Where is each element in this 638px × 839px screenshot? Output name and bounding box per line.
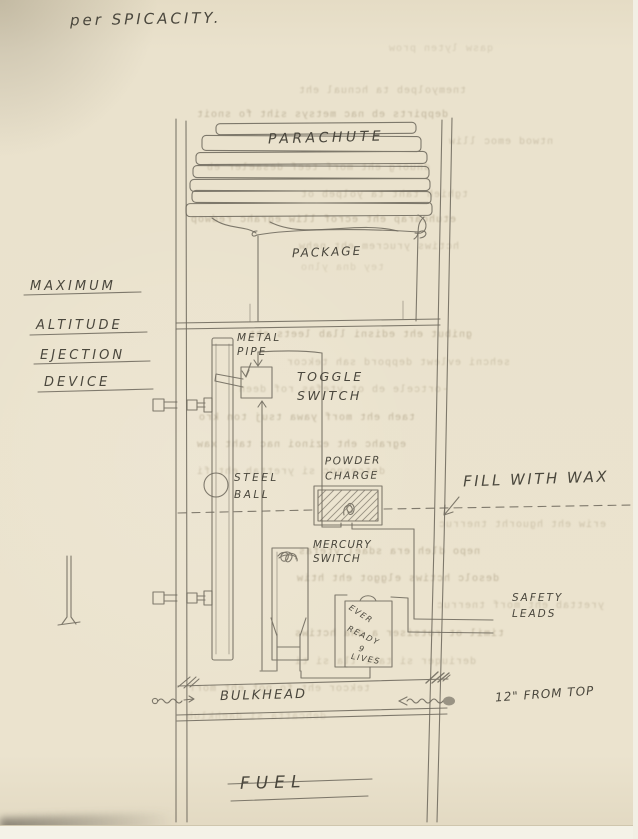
- package-box: [252, 230, 426, 321]
- mount-bolt-lower: [153, 591, 212, 605]
- label-metal-pipe: METAL PIPE: [237, 331, 281, 359]
- rocket-body-tube: [175, 118, 452, 822]
- side-label-ejection: EJECTION: [40, 348, 125, 363]
- mercury-switch: [271, 548, 308, 671]
- side-label-device: DEVICE: [44, 375, 110, 390]
- left-screw-head: [152, 698, 157, 703]
- label-safety-leads: SAFETY LEADS: [512, 590, 563, 622]
- right-screw-head: [443, 697, 455, 706]
- label-steel-line1: STEEL: [234, 470, 279, 487]
- wax-fill-dashed-line: [178, 505, 632, 513]
- label-mercury-line1: MERCURY: [313, 538, 372, 552]
- label-metal-pipe-line2: PIPE: [237, 345, 281, 359]
- label-fuel: FUEL: [240, 772, 307, 794]
- scan-right-edge: [633, 0, 638, 839]
- label-toggle-line2: SWITCH: [297, 386, 364, 405]
- scanned-diagram-page: qasw lyten prow tnemyolpeb ta hcnual eht…: [0, 0, 638, 839]
- scan-bottom-edge: [0, 825, 638, 839]
- side-label-maximum: MAXIMUM: [30, 279, 116, 294]
- circuit-wires: [254, 351, 493, 678]
- label-package: PACKAGE: [292, 244, 363, 260]
- label-safety-line2: LEADS: [512, 606, 563, 622]
- left-screw-threads: [158, 699, 182, 703]
- section-divider: [176, 301, 440, 329]
- label-steel-ball: STEEL BALL: [234, 470, 279, 504]
- label-mercury-line2: SWITCH: [313, 552, 372, 566]
- powder-charge-box: [314, 486, 382, 525]
- side-label-altitude: ALTITUDE: [36, 318, 123, 333]
- label-powder-charge: POWDER CHARGE: [325, 454, 382, 485]
- label-powder-line2: CHARGE: [325, 469, 381, 485]
- right-screw-threads: [407, 699, 443, 703]
- margin-pin-mark: [58, 556, 80, 625]
- metal-pipe: [212, 338, 233, 660]
- toggle-switch: [215, 367, 272, 398]
- label-powder-line1: POWDER: [325, 454, 381, 470]
- label-bulkhead: BULKHEAD: [220, 687, 307, 704]
- mount-bolt-upper: [153, 398, 212, 412]
- label-safety-line1: SAFETY: [512, 590, 563, 606]
- safety-lead-lower: [408, 632, 493, 633]
- label-toggle-switch: TOGGLE SWITCH: [297, 367, 364, 405]
- safety-lead-upper: [414, 619, 493, 620]
- label-metal-pipe-line1: METAL: [237, 331, 281, 345]
- label-steel-line2: BALL: [234, 487, 279, 504]
- wax-arrow: [445, 497, 459, 514]
- label-mercury-switch: MERCURY SWITCH: [313, 538, 372, 566]
- label-parachute: PARACHUTE: [268, 128, 384, 147]
- label-toggle-line1: TOGGLE: [297, 367, 364, 386]
- page-title: per SPICACITY.: [70, 9, 222, 30]
- diagram-drawing: [0, 0, 638, 839]
